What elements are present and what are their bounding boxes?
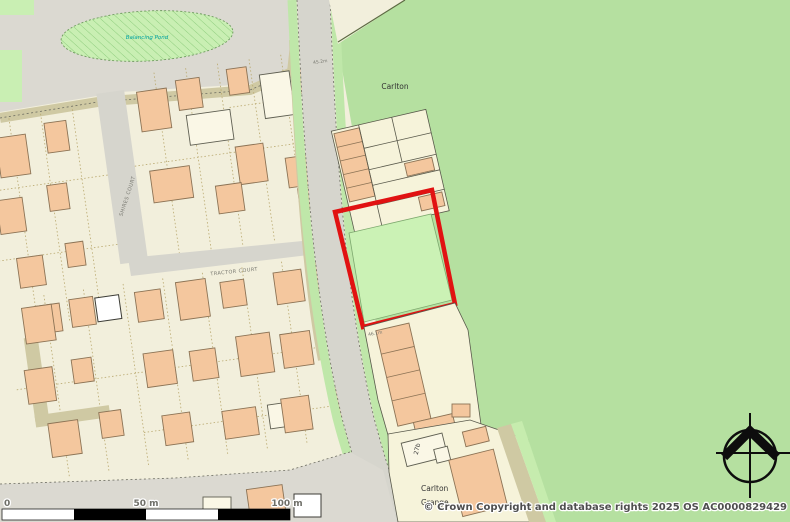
green-patch [0,50,22,102]
copyright-attribution: © Crown Copyright and database rights 20… [424,502,787,513]
os-map-canvas: Balancing Pond Carlton TRACTOR COURT SHI… [0,0,790,522]
pond-label: Balancing Pond [126,35,169,41]
green-patch [0,0,34,15]
scale-label-hundred: 100 m [271,499,302,509]
grange-label-line1: Carlton [421,484,449,493]
scale-label-fifty: 50 m [133,499,158,509]
scale-label-zero: 0 [4,499,10,509]
map-viewport: Balancing Pond Carlton TRACTOR COURT SHI… [0,0,790,522]
district-label: Carlton [381,82,409,91]
outbuilding [452,404,470,417]
